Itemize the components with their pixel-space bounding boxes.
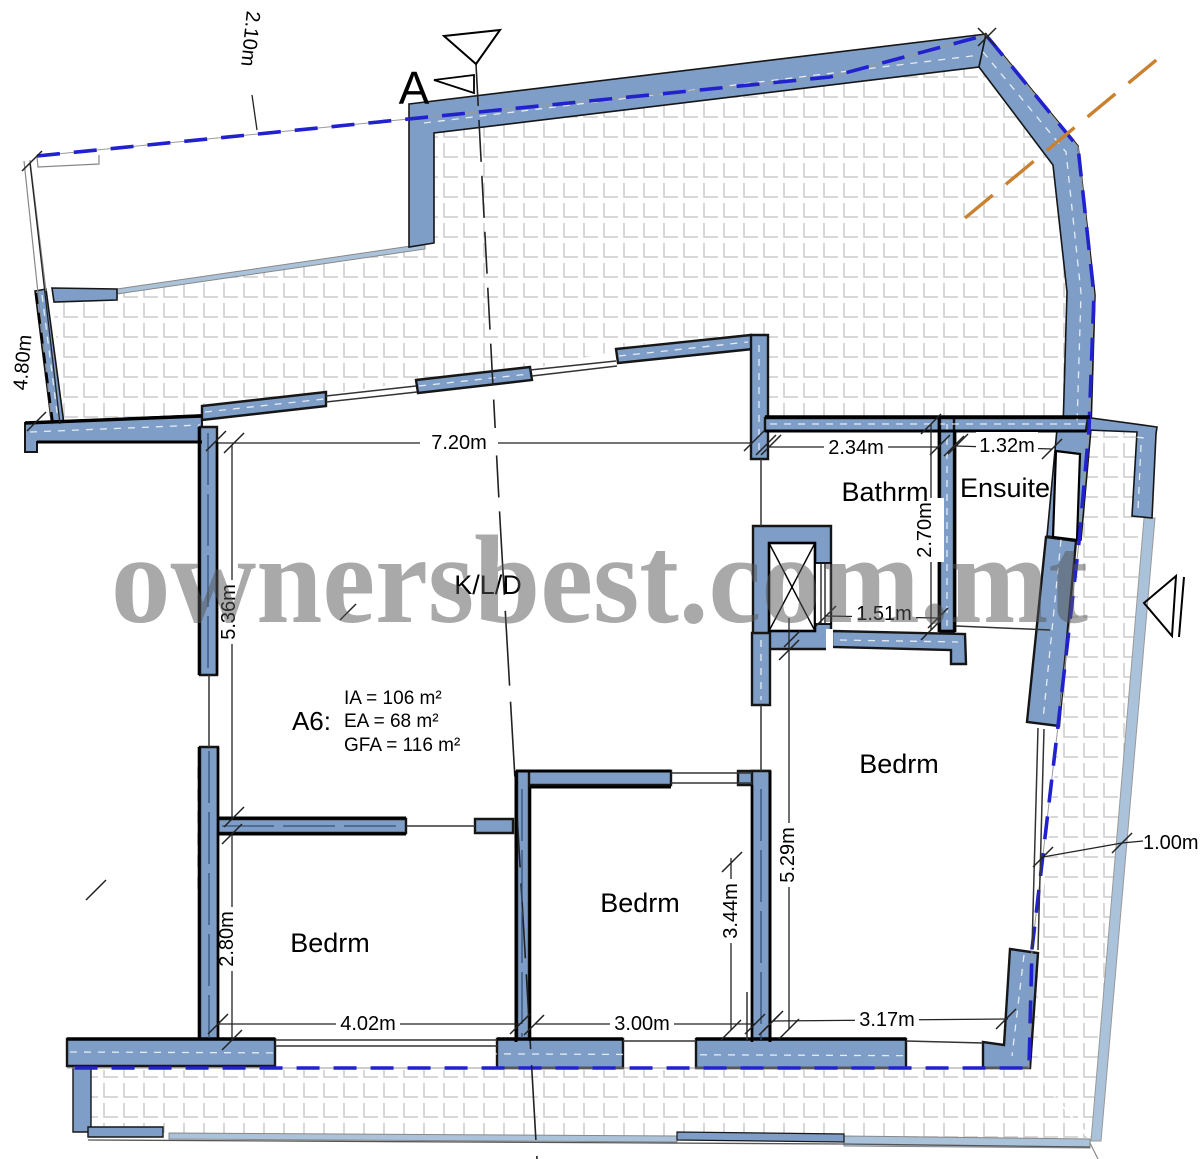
svg-text:EA = 68 m²: EA = 68 m² (344, 711, 439, 732)
svg-text:5.29m: 5.29m (777, 827, 799, 883)
svg-text:3.17m: 3.17m (859, 1009, 915, 1031)
svg-text:7.20m: 7.20m (431, 432, 487, 454)
svg-text:1.00m: 1.00m (1143, 832, 1199, 854)
svg-text:ownersbest.com.mt: ownersbest.com.mt (111, 511, 1088, 650)
svg-text:A: A (399, 62, 430, 114)
svg-text:4.02m: 4.02m (340, 1013, 396, 1035)
svg-text:GFA = 116 m²: GFA = 116 m² (344, 735, 460, 756)
svg-text:IA = 106 m²: IA = 106 m² (344, 688, 442, 709)
svg-text:2.34m: 2.34m (828, 437, 884, 459)
svg-text:1.32m: 1.32m (979, 435, 1035, 457)
svg-text:Bedrm: Bedrm (600, 888, 680, 918)
svg-text:A6:: A6: (292, 706, 331, 736)
svg-text:Ensuite: Ensuite (960, 473, 1050, 503)
svg-text:Bedrm: Bedrm (859, 749, 939, 779)
svg-text:3.44m: 3.44m (720, 883, 742, 939)
svg-text:Bathrm: Bathrm (841, 477, 928, 507)
svg-text:2.80m: 2.80m (216, 911, 238, 967)
svg-text:Bedrm: Bedrm (290, 928, 370, 958)
svg-text:3.00m: 3.00m (614, 1013, 670, 1035)
